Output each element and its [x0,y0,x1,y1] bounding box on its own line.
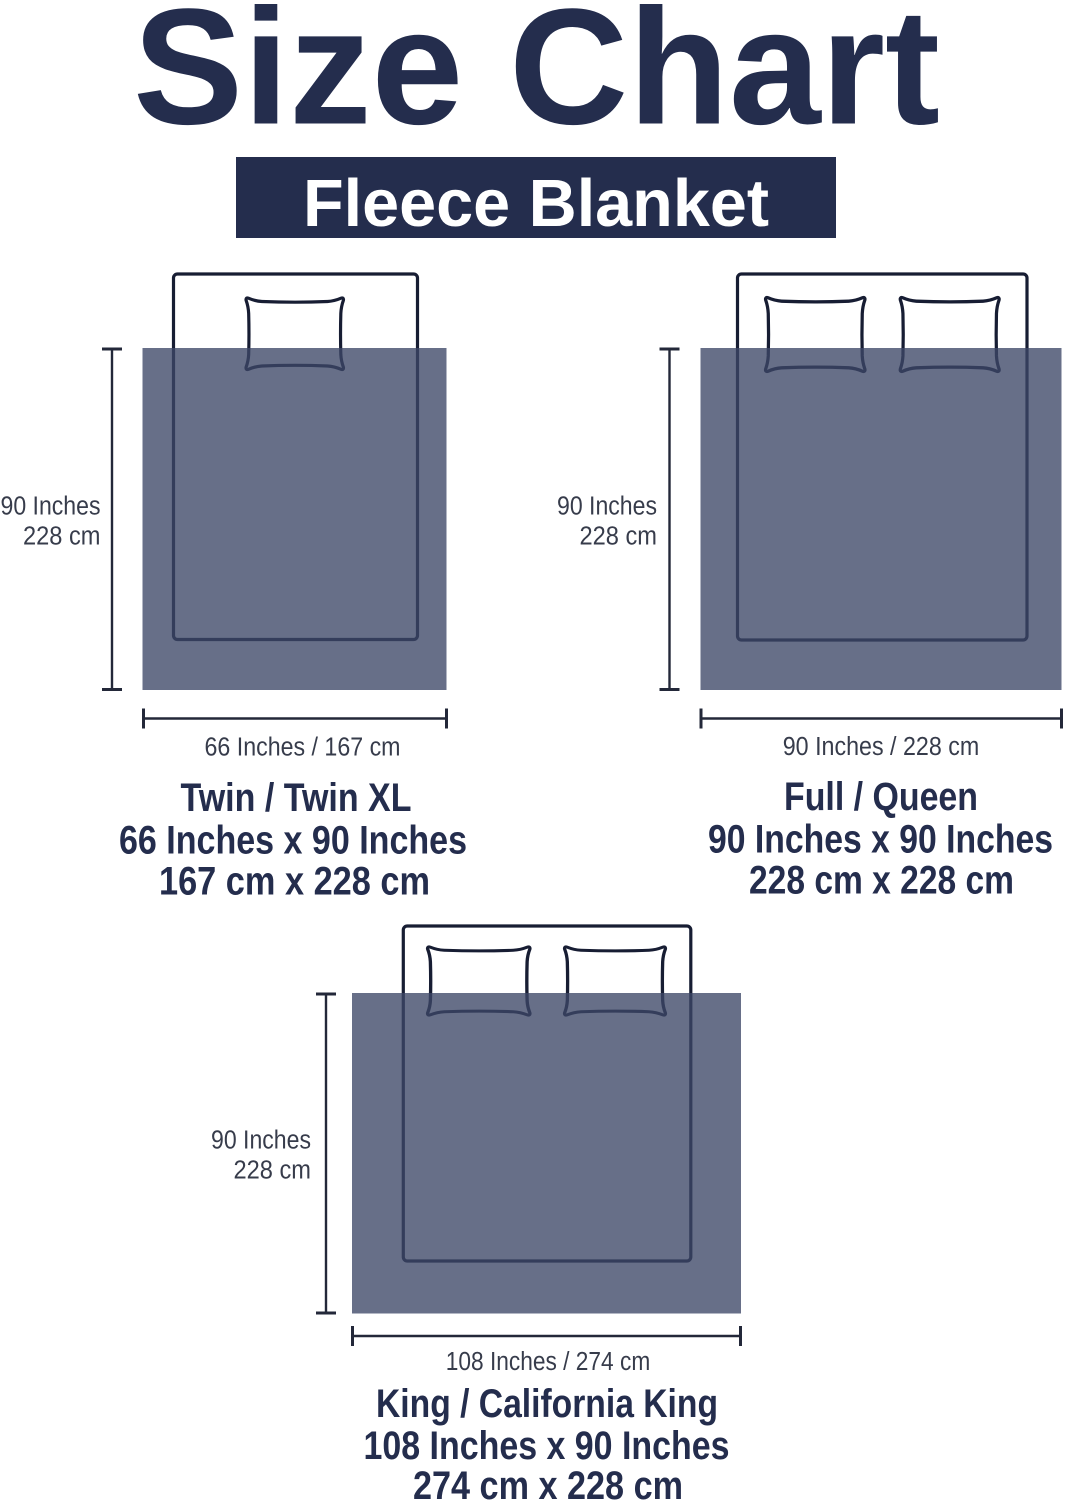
svg-text:90 Inches / 228 cm: 90 Inches / 228 cm [783,733,980,761]
svg-text:228 cm x 228 cm: 228 cm x 228 cm [749,859,1014,903]
svg-text:Fleece Blanket: Fleece Blanket [303,166,769,241]
svg-text:167 cm x 228 cm: 167 cm x 228 cm [159,860,430,904]
svg-text:90 Inches: 90 Inches [1,493,101,521]
svg-text:228 cm: 228 cm [23,523,101,551]
svg-text:King / California King: King / California King [376,1382,718,1426]
svg-text:Full / Queen: Full / Queen [784,775,978,819]
svg-text:108 Inches x 90 Inches: 108 Inches x 90 Inches [364,1424,730,1468]
svg-text:66 Inches x 90 Inches: 66 Inches x 90 Inches [119,819,467,863]
svg-text:Size Chart: Size Chart [133,0,940,159]
svg-text:66 Inches / 167 cm: 66 Inches / 167 cm [205,734,401,762]
svg-text:228 cm: 228 cm [580,523,658,551]
svg-text:Twin / Twin XL: Twin / Twin XL [181,776,412,820]
svg-text:274 cm x 228 cm: 274 cm x 228 cm [413,1464,683,1500]
svg-text:90 Inches x 90 Inches: 90 Inches x 90 Inches [708,818,1053,862]
svg-text:108 Inches / 274 cm: 108 Inches / 274 cm [446,1348,651,1376]
svg-text:90 Inches: 90 Inches [211,1127,311,1155]
svg-text:90 Inches: 90 Inches [557,493,657,521]
svg-text:228 cm: 228 cm [234,1157,312,1185]
